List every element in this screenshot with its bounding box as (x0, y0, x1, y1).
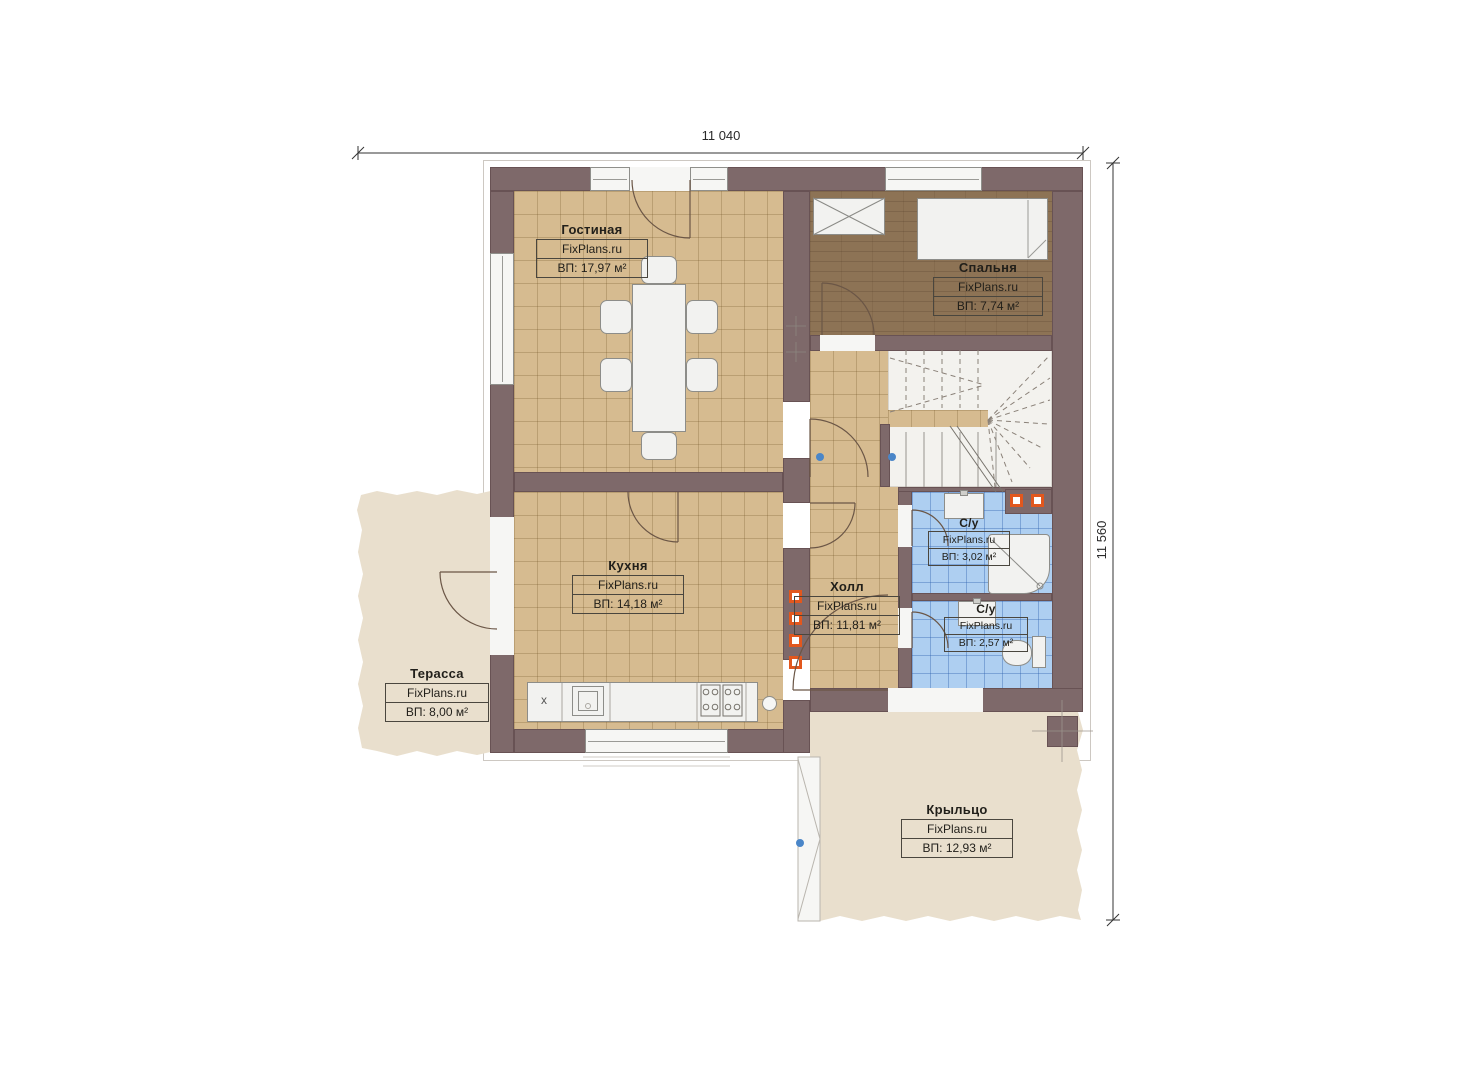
room-title-porch: Крыльцо (901, 802, 1013, 817)
living-window-top-right (690, 167, 728, 191)
floor-plan: 11 040 11 560 Гостиная FixPlans.ru ВП: 1… (0, 0, 1474, 1080)
wall-top (490, 167, 1083, 191)
chair-right-2 (686, 358, 718, 392)
label-kitchen: Кухня FixPlans.ru ВП: 14,18 м² (572, 558, 684, 614)
room-title-bath1: С/у (928, 516, 1010, 530)
room-title-terrace: Терасса (385, 666, 489, 681)
area-kitchen: ВП: 14,18 м² (573, 594, 683, 613)
watermark-bath1: FixPlans.ru (929, 532, 1009, 548)
living-window-top-left (590, 167, 630, 191)
room-title-bedroom: Спальня (933, 260, 1043, 275)
label-bedroom: Спальня FixPlans.ru ВП: 7,74 м² (933, 260, 1043, 316)
counter-x-mark: x (541, 693, 547, 707)
terrace-door-opening (490, 517, 514, 655)
dimension-width: 11 040 (661, 128, 781, 144)
chair-bottom (641, 432, 677, 460)
area-bath1: ВП: 3,02 м² (929, 548, 1009, 565)
riser-marker-3 (789, 634, 802, 647)
partition-living-hall-a (783, 191, 810, 402)
area-hall: ВП: 11,81 м² (795, 615, 899, 634)
label-bath2: С/у FixPlans.ru ВП: 2,57 м² (944, 602, 1028, 652)
entrance-door-opening (888, 688, 983, 712)
living-window-left (490, 253, 514, 385)
bedroom-window-top (885, 167, 982, 191)
porch-pillar (1047, 716, 1078, 747)
area-bath2: ВП: 2,57 м² (945, 634, 1027, 651)
partition-living-hall-b (783, 458, 810, 503)
watermark-living: FixPlans.ru (537, 240, 647, 258)
wall-living-kitchen (514, 472, 783, 492)
bed (917, 198, 1048, 260)
label-living: Гостиная FixPlans.ru ВП: 17,97 м² (536, 222, 648, 278)
area-porch: ВП: 12,93 м² (902, 838, 1012, 857)
riser-marker-4 (789, 656, 802, 669)
label-terrace: Терасса FixPlans.ru ВП: 8,00 м² (385, 666, 489, 722)
bedroom-door-opening (820, 335, 875, 351)
area-living: ВП: 17,97 м² (537, 258, 647, 277)
watermark-bedroom: FixPlans.ru (934, 278, 1042, 296)
entry-door-opening-top (630, 167, 690, 191)
bath2-door-opening (898, 608, 912, 648)
room-title-hall: Холл (794, 579, 900, 594)
kitchen-window-bottom (585, 729, 728, 753)
kitchen-sink-basin (578, 691, 598, 711)
area-terrace: ВП: 8,00 м² (386, 702, 488, 721)
toilet-tank (1032, 636, 1046, 668)
stair-landing-floor (888, 410, 988, 427)
dining-table (632, 284, 686, 432)
vent-marker-2 (1031, 494, 1044, 507)
watermark-terrace: FixPlans.ru (386, 684, 488, 702)
wardrobe (813, 198, 885, 235)
bath1-door-opening (898, 505, 912, 547)
label-porch: Крыльцо FixPlans.ru ВП: 12,93 м² (901, 802, 1013, 858)
wall-stair-side (880, 424, 890, 487)
room-title-bath2: С/у (944, 602, 1028, 616)
watermark-hall: FixPlans.ru (795, 597, 899, 615)
label-bath1: С/у FixPlans.ru ВП: 3,02 м² (928, 516, 1010, 566)
kitchen-counter (527, 682, 758, 722)
vent-marker-1 (1010, 494, 1023, 507)
dimension-height: 11 560 (1094, 505, 1110, 575)
area-bedroom: ВП: 7,74 м² (934, 296, 1042, 315)
label-hall: Холл FixPlans.ru ВП: 11,81 м² (794, 579, 900, 635)
watermark-porch: FixPlans.ru (902, 820, 1012, 838)
hall-floor (810, 348, 898, 688)
chair-left-1 (600, 300, 632, 334)
kitchen-round-fixture (762, 696, 777, 711)
bath1-sink-tap (960, 490, 968, 496)
partition-bottom-step (783, 700, 810, 753)
chair-left-2 (600, 358, 632, 392)
watermark-bath2: FixPlans.ru (945, 618, 1027, 634)
wall-right (1052, 191, 1083, 712)
wall-bath-divider (912, 593, 1052, 601)
room-title-living: Гостиная (536, 222, 648, 237)
watermark-kitchen: FixPlans.ru (573, 576, 683, 594)
chair-right-1 (686, 300, 718, 334)
room-title-kitchen: Кухня (572, 558, 684, 573)
dimension-top-line (352, 146, 1089, 160)
